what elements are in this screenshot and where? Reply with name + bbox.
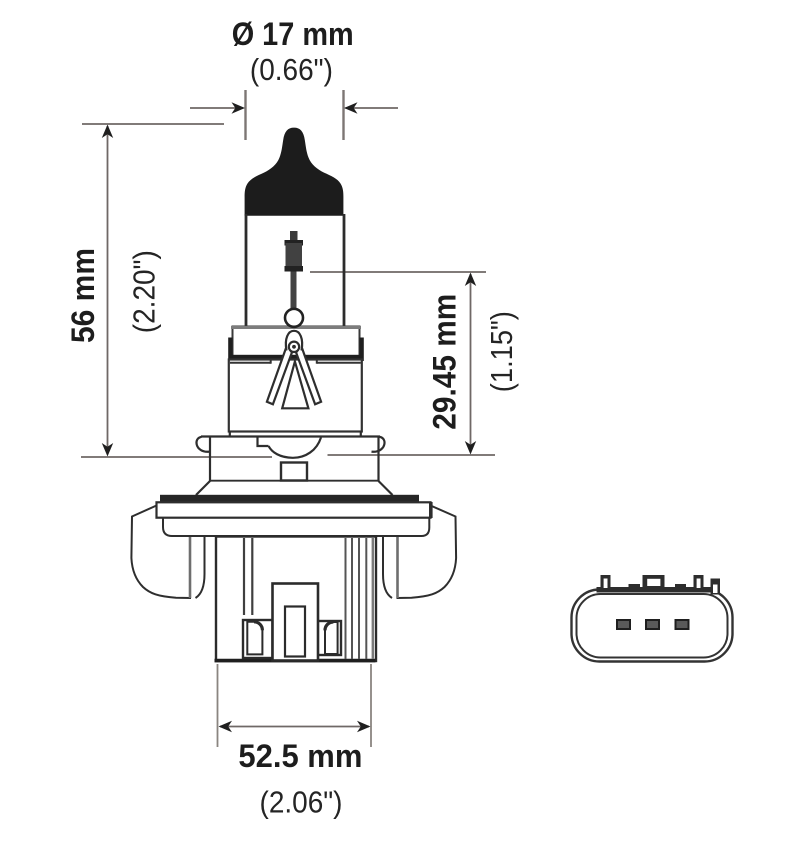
svg-text:(0.66"): (0.66") xyxy=(250,52,333,87)
svg-text:56 mm: 56 mm xyxy=(65,248,101,343)
svg-text:Ø 17 mm: Ø 17 mm xyxy=(232,16,354,52)
svg-text:52.5 mm: 52.5 mm xyxy=(238,738,362,774)
svg-text:(2.20"): (2.20") xyxy=(127,250,162,333)
svg-text:(2.06"): (2.06") xyxy=(260,785,343,820)
svg-text:(1.15"): (1.15") xyxy=(484,311,519,392)
svg-text:29.45 mm: 29.45 mm xyxy=(427,294,463,430)
